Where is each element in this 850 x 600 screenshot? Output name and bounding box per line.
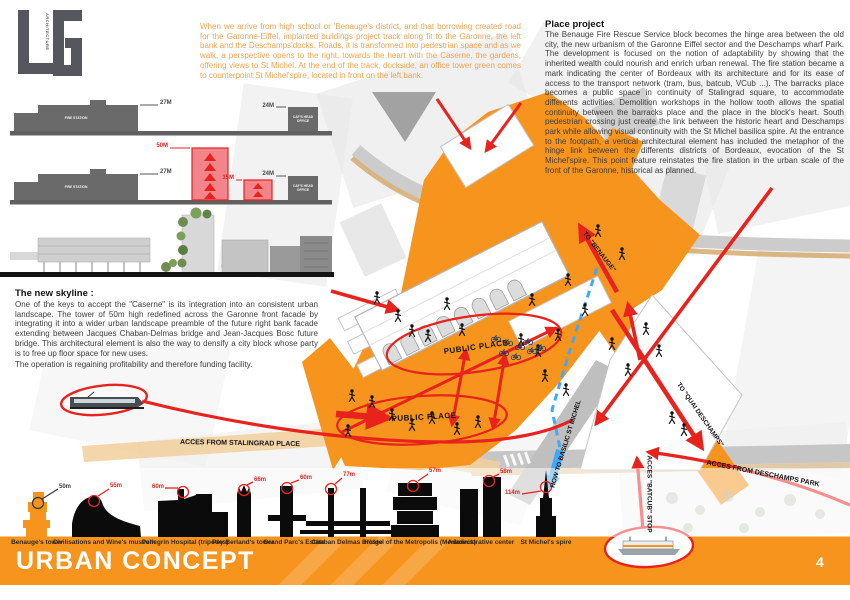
dim-24m-row2: 24M (252, 171, 274, 177)
skyline-height: 66m (254, 477, 266, 483)
head-office-label-2: CAF'S HEAD OFFICE (288, 184, 317, 192)
skyline-label: Civilisations and Wine's museum (53, 539, 156, 546)
page-title: URBAN CONCEPT (16, 547, 255, 576)
acces-batcub-label: ACCES "BATCUB" STOP (646, 455, 653, 532)
dim-50m-tower: 50M (148, 143, 168, 149)
how-to-basilic-label: HOW TO BASILIC ST MICHEL (549, 399, 582, 488)
skyline-height: 60m (148, 484, 164, 490)
fire-station-label-1: FIRE STATION (65, 116, 88, 120)
skyline-height: 58m (500, 469, 512, 475)
page-number: 4 (816, 554, 824, 570)
fire-station-label-2: FIRE STATION (65, 185, 88, 189)
skyline-label: St Michel's spire (520, 539, 571, 546)
pedestrian-link-line (545, 268, 597, 492)
skyline-height: 55m (110, 483, 122, 489)
to-benauge-label: TO "BENAUGE" (581, 230, 617, 273)
new-skyline-body-1: One of the keys to accept the "Caserne" … (15, 300, 318, 358)
logo-vertical-text: ARCHITECTURE (45, 13, 50, 51)
head-office-label-1: CAF'S HEAD OFFICE (288, 115, 317, 123)
intro-paragraph: When we arrive from high school or 'Bena… (200, 22, 521, 80)
architect-logo-icon (18, 10, 82, 76)
dim-24m-row1: 24M (252, 103, 274, 109)
public-place-label-upper: PUBLIC PLACE (443, 338, 509, 356)
new-skyline-body-2: The operation is regaining profitability… (15, 360, 318, 370)
skyline-height: 50m (59, 484, 71, 490)
new-skyline-title: The new skyline : (15, 288, 94, 299)
skyline-height: 60m (300, 475, 312, 481)
dim-15m-tower: 15M (214, 175, 234, 181)
place-project-body: The Benauge Fire Rescue Service block be… (545, 30, 844, 176)
skyline-height: 114m (498, 490, 520, 496)
skyline-label: Administrative center (448, 539, 514, 546)
dim-27m-row1: 27M (160, 100, 172, 106)
urban-concept-poster: ARCHITECTURE When we arrive from high sc… (0, 0, 850, 600)
skyline-height: 77m (343, 472, 355, 478)
dim-27m-row2: 27M (160, 169, 172, 175)
place-project-title: Place project (545, 19, 604, 30)
skyline-height: 57m (429, 468, 441, 474)
